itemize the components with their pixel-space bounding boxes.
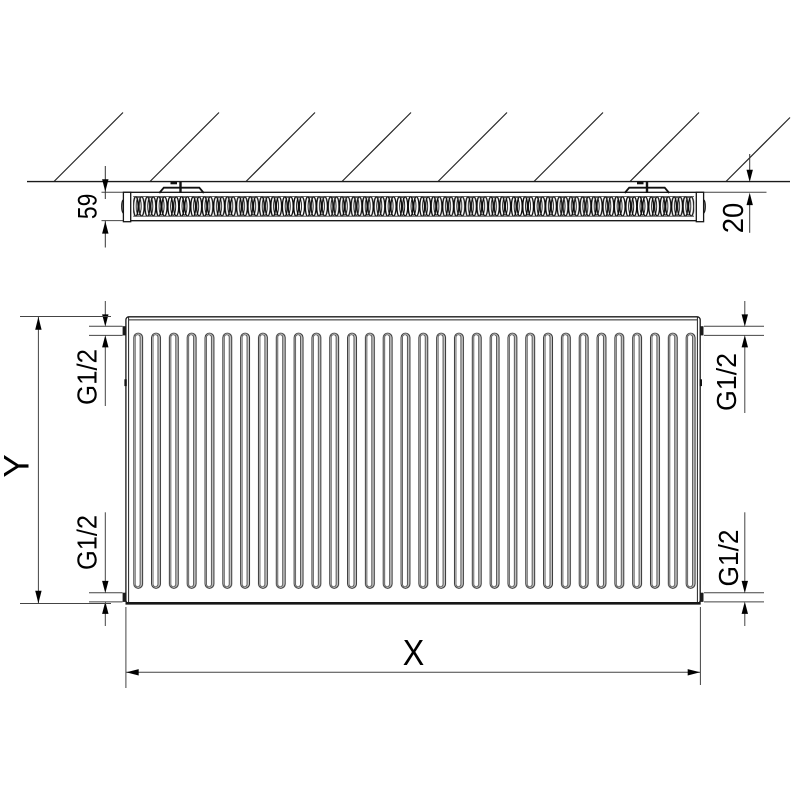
svg-text:G1/2: G1/2 [713, 530, 744, 587]
svg-text:G1/2: G1/2 [72, 349, 103, 405]
svg-text:X: X [403, 632, 425, 673]
svg-text:G1/2: G1/2 [72, 515, 103, 570]
svg-text:59: 59 [73, 194, 103, 220]
svg-text:G1/2: G1/2 [711, 353, 742, 411]
svg-text:Y: Y [0, 454, 36, 477]
svg-text:20: 20 [718, 203, 750, 234]
